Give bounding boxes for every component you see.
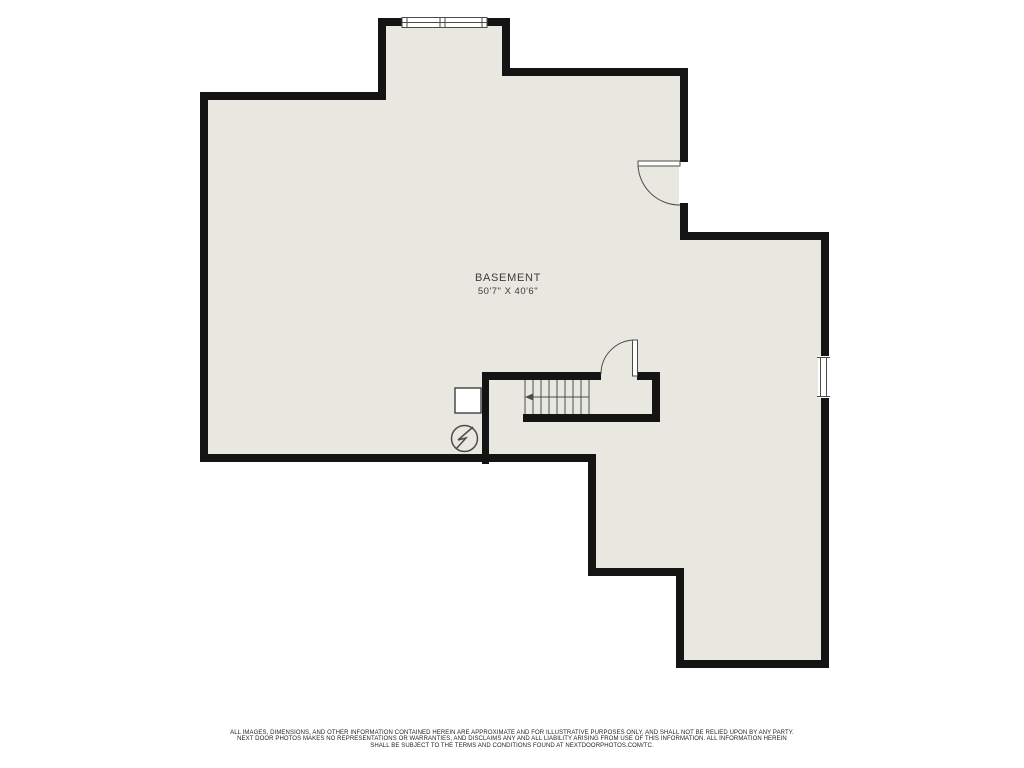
disclaimer-line: SHALL BE SUBJECT TO THE TERMS AND CONDIT… bbox=[0, 743, 1024, 749]
electrical-panel-icon bbox=[452, 426, 478, 452]
room-dimensions: 50'7" X 40'6" bbox=[408, 286, 608, 297]
double-window-icon bbox=[402, 18, 487, 28]
disclaimer: ALL IMAGES, DIMENSIONS, AND OTHER INFORM… bbox=[0, 730, 1024, 749]
window-icon bbox=[817, 356, 830, 398]
floor-plan-outline bbox=[204, 22, 825, 664]
room-label-block: BASEMENT 50'7" X 40'6" bbox=[408, 272, 608, 297]
utility-box-icon bbox=[455, 388, 481, 413]
floor-plan bbox=[0, 0, 1024, 768]
room-name: BASEMENT bbox=[408, 272, 608, 284]
